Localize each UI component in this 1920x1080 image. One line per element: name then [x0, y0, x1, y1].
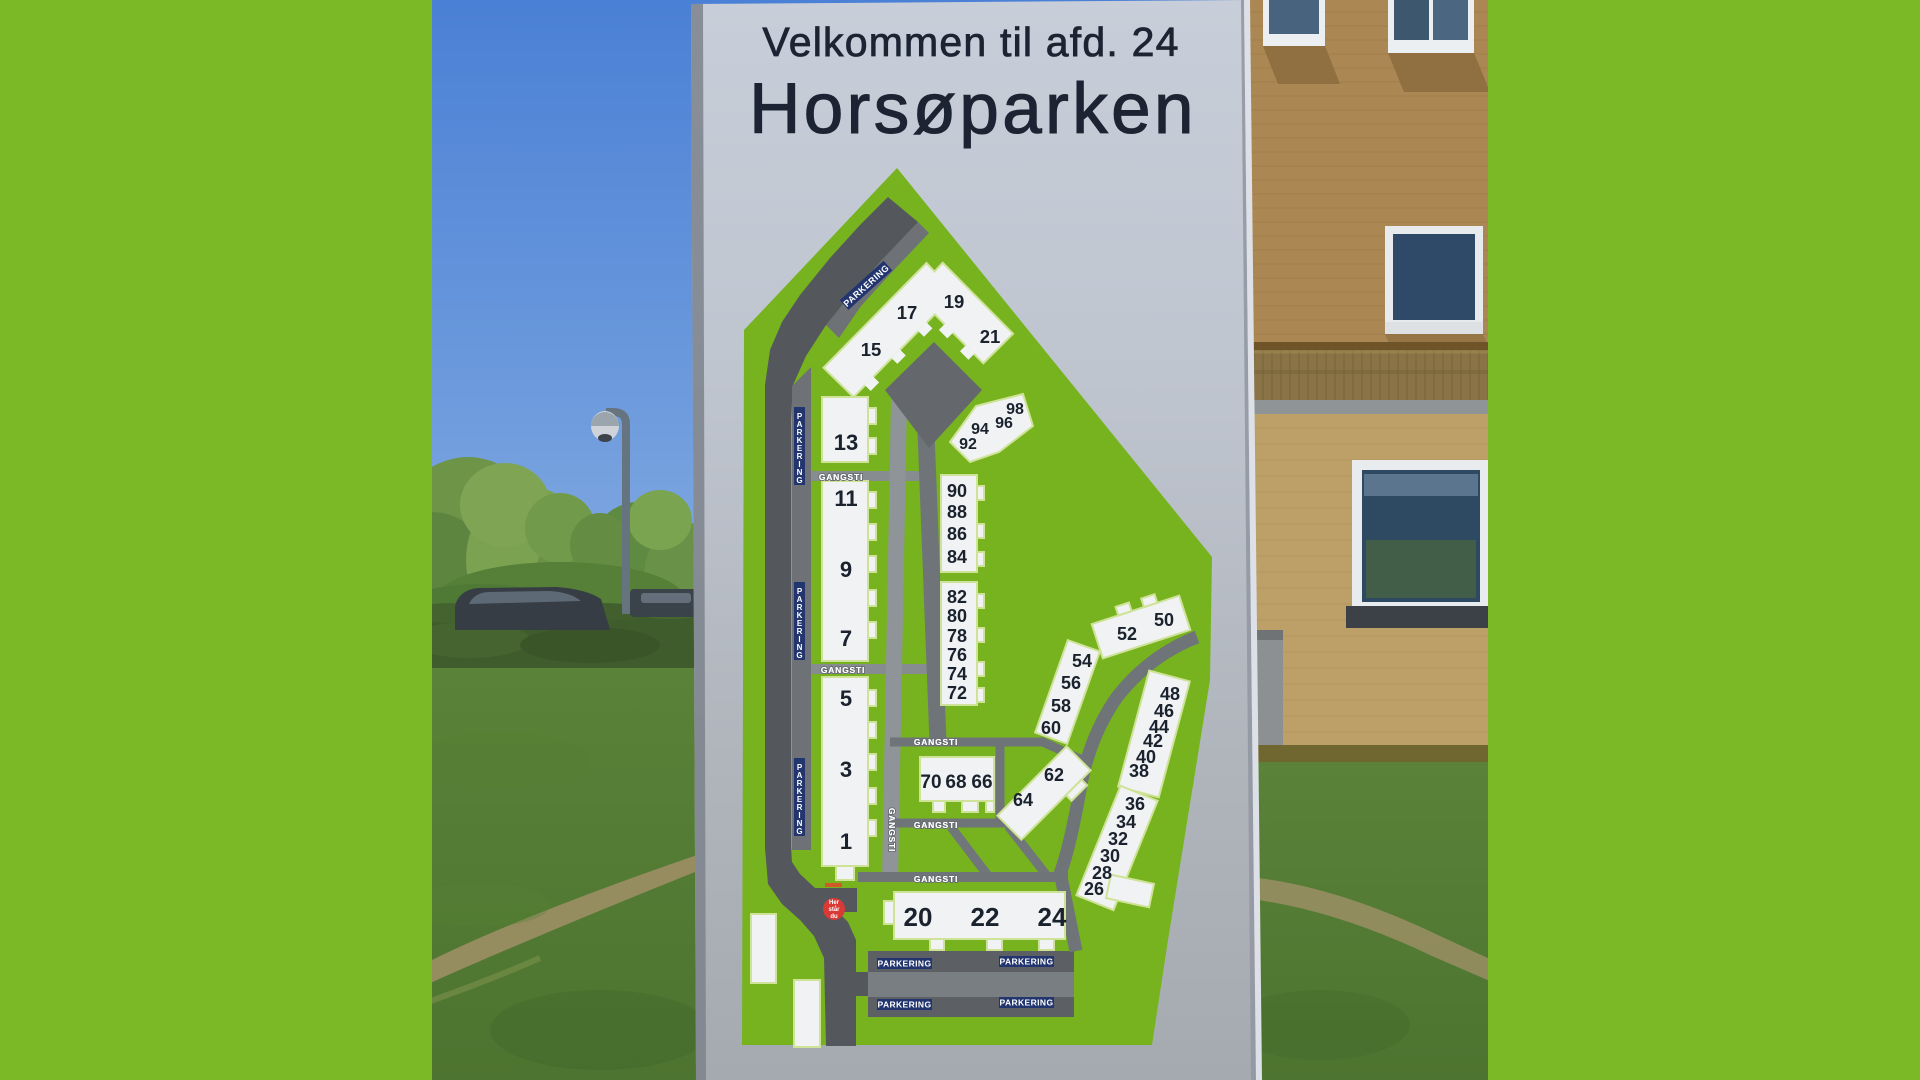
svg-text:20: 20	[904, 902, 933, 932]
svg-text:52: 52	[1117, 624, 1137, 644]
svg-text:90: 90	[947, 481, 967, 501]
svg-text:GANGSTI: GANGSTI	[914, 737, 958, 747]
svg-text:26: 26	[1084, 879, 1104, 899]
svg-text:62: 62	[1044, 765, 1064, 785]
svg-text:PARKERING: PARKERING	[1000, 998, 1054, 1008]
svg-text:PARKERING: PARKERING	[796, 763, 802, 836]
svg-text:13: 13	[834, 430, 858, 455]
svg-text:74: 74	[947, 664, 967, 684]
svg-text:66: 66	[971, 772, 992, 793]
svg-text:38: 38	[1129, 761, 1149, 781]
svg-text:72: 72	[947, 683, 967, 703]
svg-text:15: 15	[861, 339, 882, 360]
svg-text:PARKERING: PARKERING	[796, 587, 802, 660]
svg-text:92: 92	[959, 436, 977, 453]
svg-text:78: 78	[947, 626, 967, 646]
svg-text:24: 24	[1038, 902, 1067, 932]
svg-text:du: du	[830, 914, 838, 920]
svg-text:54: 54	[1072, 651, 1092, 671]
svg-text:GANGSTI: GANGSTI	[914, 820, 958, 830]
svg-text:PARKERING: PARKERING	[878, 959, 932, 969]
svg-text:60: 60	[1041, 718, 1061, 738]
svg-text:PARKERING: PARKERING	[796, 412, 802, 485]
svg-text:56: 56	[1061, 673, 1081, 693]
svg-text:94: 94	[971, 421, 989, 438]
svg-text:76: 76	[947, 645, 967, 665]
svg-text:GANGSTI: GANGSTI	[887, 808, 897, 852]
svg-text:86: 86	[947, 524, 967, 544]
svg-text:88: 88	[947, 502, 967, 522]
svg-text:GANGSTI: GANGSTI	[819, 472, 863, 482]
svg-text:68: 68	[945, 772, 966, 793]
svg-text:36: 36	[1125, 794, 1145, 814]
svg-text:PARKERING: PARKERING	[878, 1000, 932, 1010]
svg-text:3: 3	[840, 757, 852, 782]
svg-text:11: 11	[834, 486, 857, 511]
svg-text:58: 58	[1051, 696, 1071, 716]
svg-text:GANGSTI: GANGSTI	[914, 874, 958, 884]
svg-text:64: 64	[1013, 790, 1033, 810]
svg-text:98: 98	[1006, 401, 1024, 418]
svg-text:står: står	[828, 906, 840, 913]
svg-text:7: 7	[840, 626, 852, 651]
svg-text:19: 19	[944, 291, 965, 312]
svg-text:80: 80	[947, 606, 967, 626]
svg-text:9: 9	[840, 557, 852, 582]
svg-text:50: 50	[1154, 610, 1174, 630]
svg-text:5: 5	[840, 686, 852, 711]
svg-text:84: 84	[947, 547, 967, 567]
svg-text:22: 22	[971, 902, 1000, 932]
svg-text:Velkommen til afd. 24: Velkommen til afd. 24	[762, 19, 1179, 65]
svg-text:1: 1	[840, 829, 852, 854]
svg-text:70: 70	[920, 772, 941, 793]
svg-text:21: 21	[980, 326, 1001, 347]
svg-text:GANGSTI: GANGSTI	[821, 665, 865, 675]
svg-text:PARKERING: PARKERING	[1000, 957, 1054, 967]
svg-text:Horsøparken: Horsøparken	[749, 70, 1197, 149]
svg-text:82: 82	[947, 587, 967, 607]
svg-text:17: 17	[897, 302, 918, 323]
svg-text:Her: Her	[829, 900, 840, 906]
